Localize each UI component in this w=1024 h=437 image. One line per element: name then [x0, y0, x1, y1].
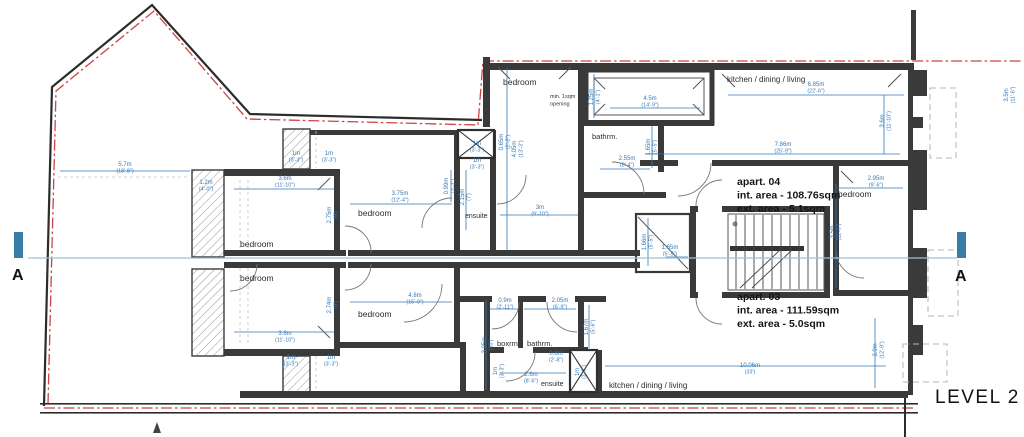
wall-segment [824, 206, 830, 298]
wall-segment [454, 268, 460, 348]
wall-segment [224, 169, 340, 176]
dimension-label: 1m(3'-3") [470, 158, 485, 171]
dimension-label: 1.2m(4'-0") [199, 180, 214, 193]
section-marker-right [957, 232, 966, 258]
section-label-right: A [955, 268, 967, 285]
dimension-label: 1.65m(5'-5") [662, 245, 679, 258]
wall-segment [913, 248, 927, 298]
dimension-label: 3.5m(11'-6") [1004, 86, 1017, 103]
north-arrow-icon [153, 422, 161, 433]
dimension-label: 4.5m(14'-9") [641, 96, 659, 109]
dimension-label: 4.05m(13'-3") [512, 140, 525, 158]
dimension-label: 3.5m(11'-6") [830, 223, 843, 240]
room-label: bedroom [838, 189, 872, 199]
wall-segment [224, 262, 346, 268]
room-label: bedroom [358, 309, 392, 319]
wall-segment [712, 160, 914, 166]
dimension-label: 10.06m(33') [740, 363, 760, 376]
dimension-label: 1m(3'-3") [324, 355, 339, 368]
room-label: bedroom [503, 77, 537, 87]
room-label: boxrm. [497, 339, 520, 348]
dimension-label: 0.99m(3'-3") [444, 178, 457, 195]
wall-segment [584, 192, 666, 198]
dimension-label: 6.85m(22'-6") [807, 82, 825, 95]
wall-segment [578, 63, 584, 256]
dimension-label: 7.86m(25'-9") [774, 142, 792, 155]
section-label-left: A [12, 267, 24, 284]
apartment-info: ext. area - 5.1sqm [737, 203, 825, 215]
wall-segment [911, 10, 916, 60]
floor-plan-drawing: A A bedroombedroombedroombedroombedroomb… [0, 0, 1024, 437]
room-label: ensuite [541, 381, 564, 388]
dimension-label: 1.66m(5'-5") [642, 234, 655, 251]
opening-note-line: min. 1sqm [550, 94, 576, 100]
apartment-info: apart. 04 [737, 176, 780, 188]
dimension-label: 4.8m(15'-9") [406, 293, 424, 306]
opening-note: min. 1sqmopening [550, 94, 576, 108]
dimension-labels: 5.7m(18'-8")1.2m(4'-0")3.6m(11'-10")1m(3… [116, 82, 1016, 385]
wall-segment [310, 130, 460, 135]
dimension-label: 1m(3'-3") [493, 364, 506, 379]
dimension-label: 3.75m(12'-4") [391, 191, 409, 204]
wall-segment [224, 250, 346, 256]
wall-segment [348, 262, 640, 268]
wall-segment [833, 290, 915, 296]
wall-segment [913, 70, 927, 96]
room-label: bedroom [240, 273, 274, 283]
dimension-label: 5.7m(18'-8") [116, 162, 134, 175]
dimension-label: 2.55m(8'-4") [619, 156, 636, 169]
room-label: kitchen / dining / living [609, 381, 687, 390]
room-label: bedroom [358, 208, 392, 218]
dimension-label: 3.6m(11'-10") [275, 331, 295, 344]
wall-segment [913, 150, 927, 210]
staircase [728, 214, 824, 290]
dimension-label: 2.95m(9'-6") [868, 176, 885, 189]
wall-segment [224, 349, 340, 356]
room-label: bedroom [240, 239, 274, 249]
apartment-info: ext. area - 5.0sqm [737, 318, 825, 330]
apartment-info: apart. 03 [737, 291, 780, 303]
wall-segment [913, 325, 923, 355]
wall-segment [340, 342, 466, 348]
opening-note-line: opening [550, 102, 570, 108]
wall-segment [460, 342, 466, 392]
dimension-label: 1.67m(5'-6") [584, 319, 597, 336]
room-label: ensuite [465, 213, 488, 220]
room-label: bathrm. [527, 339, 552, 348]
room-label: kitchen / dining / living [727, 75, 805, 84]
section-marker-left [14, 232, 23, 258]
floor-plan-page: A A bedroombedroombedroombedroombedroomb… [0, 0, 1024, 437]
dimension-label: 3.6m(11'-10") [275, 176, 295, 189]
dimension-label: 3.9m(12'-9") [873, 341, 886, 359]
dimension-label: 3m(9'-10") [531, 205, 549, 218]
wall-segment [913, 117, 923, 128]
dimension-label: 0.8m(2'-8") [549, 351, 564, 364]
dimension-label: 0.65m(2'-2") [499, 134, 512, 151]
room-label: bathrm. [592, 132, 617, 141]
dimension-label: 1.65m(5'-5") [646, 139, 659, 156]
dimension-label: 0.9m(2'-11") [497, 298, 514, 311]
level-title: LEVEL 2 [935, 387, 1020, 408]
dimension-label: 1.25m(4'-1") [589, 89, 602, 106]
apartment-info: int. area - 108.76sqm [737, 190, 840, 202]
wall-segment [908, 63, 913, 395]
dimension-label: 2.05m(6'-9") [552, 298, 569, 311]
dimension-label: 2.6m(8'-6") [524, 372, 539, 385]
apartment-info: int. area - 111.59sqm [737, 305, 839, 317]
wall-segment [640, 160, 678, 166]
dimension-label: 3.6m(11'-10") [880, 111, 893, 131]
dimension-label: 1m(3'-3") [322, 151, 337, 164]
